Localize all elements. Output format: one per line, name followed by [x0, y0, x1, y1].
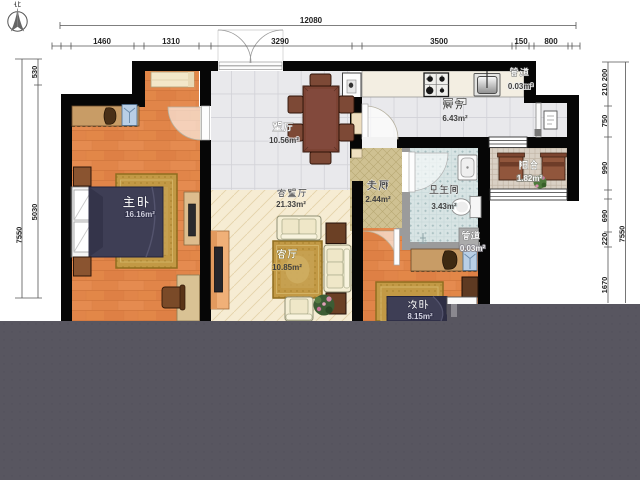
- svg-text:7550: 7550: [15, 227, 24, 244]
- svg-text:6.43m²: 6.43m²: [442, 114, 468, 123]
- svg-text:210: 210: [600, 83, 609, 96]
- svg-text:16.16m²: 16.16m²: [125, 210, 155, 219]
- svg-text:990: 990: [600, 162, 609, 175]
- svg-text:0.03m²: 0.03m²: [460, 244, 486, 253]
- svg-text:21.33m²: 21.33m²: [276, 200, 306, 209]
- svg-text:10.56m²: 10.56m²: [269, 136, 299, 145]
- svg-text:750: 750: [600, 115, 609, 128]
- svg-text:200: 200: [600, 69, 609, 82]
- svg-text:1460: 1460: [93, 37, 111, 46]
- svg-text:12080: 12080: [300, 16, 323, 25]
- svg-text:2.44m²: 2.44m²: [365, 195, 391, 204]
- svg-text:5030: 5030: [30, 204, 39, 221]
- svg-text:530: 530: [30, 66, 39, 79]
- svg-text:800: 800: [544, 37, 558, 46]
- svg-text:7550: 7550: [618, 226, 627, 243]
- svg-text:150: 150: [514, 37, 528, 46]
- svg-text:10.85m²: 10.85m²: [272, 263, 302, 272]
- svg-text:1.82m²: 1.82m²: [517, 174, 543, 183]
- svg-text:220: 220: [600, 233, 609, 246]
- svg-text:3.43m²: 3.43m²: [431, 202, 457, 211]
- svg-text:0.03m²: 0.03m²: [508, 82, 534, 91]
- svg-text:1670: 1670: [600, 277, 609, 294]
- svg-text:1310: 1310: [162, 37, 180, 46]
- svg-text:690: 690: [600, 210, 609, 223]
- svg-text:3290: 3290: [271, 37, 289, 46]
- svg-text:8.15m²: 8.15m²: [407, 312, 433, 321]
- svg-text:3500: 3500: [430, 37, 448, 46]
